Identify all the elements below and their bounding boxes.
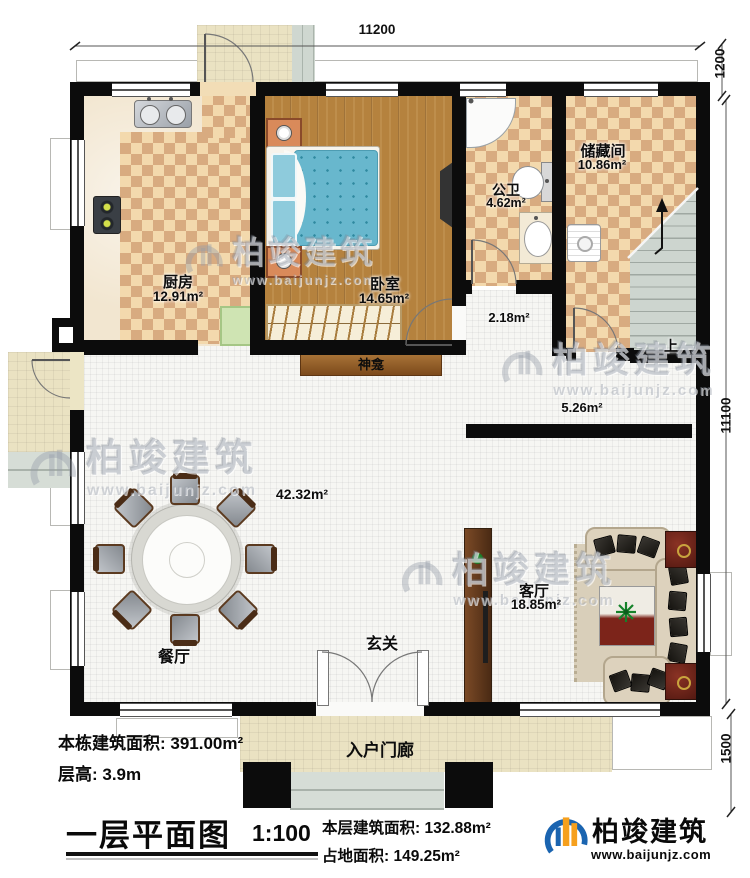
window-dining-west2 xyxy=(71,592,85,666)
cabinet-plant xyxy=(472,553,483,564)
corridor-area: 5.26m² xyxy=(552,400,612,415)
bedroom-area: 14.65m² xyxy=(352,291,416,306)
wall-kitchen-bedroom xyxy=(250,96,265,344)
brand-name: 柏竣建筑 xyxy=(592,810,708,849)
lamp xyxy=(276,253,292,269)
washer-door xyxy=(577,236,593,252)
window-living-south xyxy=(520,703,660,717)
window-bedroom xyxy=(326,83,398,97)
title-underline-shadow xyxy=(66,858,318,860)
dining-table-center xyxy=(169,542,205,578)
wall-bath-south-stub xyxy=(464,280,472,294)
shrine-label: 神龛 xyxy=(358,354,384,373)
window-sill-top xyxy=(76,60,698,82)
tv-cabinet xyxy=(464,528,492,706)
dining-chair xyxy=(245,544,275,574)
dining-table xyxy=(131,504,241,614)
bed-pillow xyxy=(271,199,297,245)
wall-kitchen-south xyxy=(70,340,198,355)
building-total-note: 本栋建筑面积: 391.00m² xyxy=(58,729,243,754)
title-underline xyxy=(66,852,318,856)
window-dining-south xyxy=(120,703,232,717)
sofa-pillow xyxy=(636,535,660,558)
side-table xyxy=(665,663,700,700)
living-area: 18.85m² xyxy=(505,597,567,612)
washing-machine xyxy=(567,224,601,262)
dining-label: 餐厅 xyxy=(148,643,200,667)
bed-pillow xyxy=(271,153,297,199)
hall-area: 2.18m² xyxy=(480,310,538,325)
wall-bedroom-south xyxy=(250,340,466,355)
sink-bowl xyxy=(140,105,160,125)
dim-right-upper: 1200 xyxy=(713,44,728,84)
column-core xyxy=(59,327,73,343)
footprint-note: 占地面积: 149.25m² xyxy=(322,844,460,866)
sofa-pillow xyxy=(616,534,636,554)
dining-chair xyxy=(170,475,200,505)
window-kitchen-west xyxy=(71,140,85,226)
window-kitchen xyxy=(112,83,190,97)
wall-bath-storage xyxy=(552,96,566,356)
foyer-label: 玄关 xyxy=(356,630,408,654)
brand-logo-icon xyxy=(540,806,590,866)
brand-url: www.baijunjz.com xyxy=(591,847,711,862)
wall-bath-south xyxy=(516,280,554,294)
stairs-up-label: 上 xyxy=(660,336,682,356)
sofa-bottom xyxy=(603,656,671,706)
table-ornament xyxy=(677,544,691,558)
side-column xyxy=(52,318,80,352)
wall-corridor-living xyxy=(466,424,692,438)
floor-height-note: 层高: 3.9m xyxy=(58,760,141,785)
side-porch-steps xyxy=(8,452,72,488)
dim-right-height: 11100 xyxy=(719,388,734,444)
window-sill-left-dining2 xyxy=(50,590,72,670)
great-room-area: 42.32m² xyxy=(266,486,338,502)
window-sill-left-kitchen xyxy=(50,138,72,230)
dining-chair xyxy=(95,544,125,574)
table-ornament xyxy=(677,676,691,690)
side-porch-floor xyxy=(8,352,72,452)
back-porch-door-gap xyxy=(200,82,256,96)
plan-scale: 1:100 xyxy=(252,820,311,847)
bed-mattress xyxy=(294,150,378,246)
bedroom-door-gap xyxy=(452,306,466,340)
sofa-pillow xyxy=(608,669,632,692)
living-tv xyxy=(483,591,488,663)
entry-porch-label: 入户门廊 xyxy=(322,736,438,761)
dim-right-lower: 1500 xyxy=(719,725,734,773)
window-dining-west1 xyxy=(71,452,85,524)
window-sill-right-living xyxy=(710,572,732,656)
floor-plan-canvas: 神龛 xyxy=(0,0,750,878)
storage-area: 10.86m² xyxy=(570,157,634,172)
sofa-pillow xyxy=(669,617,689,637)
kitchen-area: 12.91m² xyxy=(143,289,213,304)
kitchen-tile-strip xyxy=(202,94,252,138)
porch-column xyxy=(445,762,493,808)
window-living-east xyxy=(697,574,711,652)
lamp xyxy=(276,125,292,141)
porch-side-sill xyxy=(612,716,712,770)
side-table xyxy=(665,531,700,568)
dining-chair xyxy=(170,614,200,644)
kitchen-sink xyxy=(134,100,192,128)
bathroom-area: 4.62m² xyxy=(482,196,530,210)
floor-area-note: 本层建筑面积: 132.88m² xyxy=(322,816,491,838)
entry-door-leaf xyxy=(417,650,429,706)
dim-top-width: 11200 xyxy=(347,22,407,37)
entry-door-gap xyxy=(316,702,424,716)
entry-porch-steps xyxy=(290,772,444,810)
wall-closet-stub-left xyxy=(566,348,576,361)
wall-bedroom-hall xyxy=(452,96,466,306)
coffee-table xyxy=(599,586,655,646)
side-porch-door-gap xyxy=(70,352,84,410)
stove xyxy=(93,196,121,234)
plan-title: 一层平面图 xyxy=(66,810,231,855)
wash-basin xyxy=(524,221,552,257)
vanity xyxy=(519,212,556,264)
sofa-pillow xyxy=(667,642,688,664)
sofa-pillow xyxy=(668,591,688,611)
sofa-pillow xyxy=(593,535,616,557)
entry-door-leaf xyxy=(317,650,329,706)
window-bathroom xyxy=(460,83,506,97)
sink-bowl xyxy=(166,105,186,125)
porch-column xyxy=(243,762,291,808)
nightstand xyxy=(266,246,302,278)
window-storage xyxy=(584,83,658,97)
